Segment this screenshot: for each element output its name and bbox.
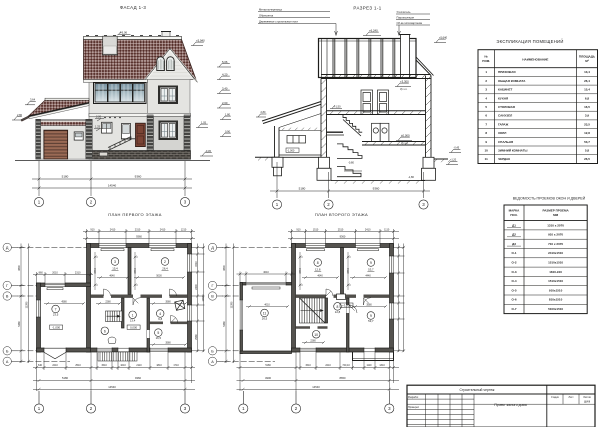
svg-text:О-3: О-3 xyxy=(511,270,516,274)
svg-text:15,4: 15,4 xyxy=(584,88,590,92)
svg-text:КАБИНЕТ: КАБИНЕТ xyxy=(498,88,512,92)
svg-text:Проект жилого дома: Проект жилого дома xyxy=(494,403,526,407)
svg-text:640: 640 xyxy=(38,364,43,367)
svg-text:8: 8 xyxy=(317,261,319,265)
svg-text:0,90: 0,90 xyxy=(225,129,231,133)
svg-text:910х1510: 910х1510 xyxy=(549,288,563,292)
svg-text:Д2: Д2 xyxy=(512,233,516,237)
svg-text:В: В xyxy=(211,295,214,299)
svg-text:ПЛОЩАДЬ: ПЛОЩАДЬ xyxy=(579,55,596,59)
svg-text:А: А xyxy=(211,360,214,364)
svg-text:9360: 9360 xyxy=(135,376,141,380)
svg-text:16,5: 16,5 xyxy=(584,105,590,109)
svg-text:Листов: Листов xyxy=(583,397,591,399)
svg-text:6: 6 xyxy=(104,329,106,333)
svg-text:1110: 1110 xyxy=(384,228,390,231)
svg-text:3800: 3800 xyxy=(223,265,226,271)
svg-text:8650: 8650 xyxy=(340,376,346,380)
svg-text:-1,20: -1,20 xyxy=(451,159,457,162)
svg-text:А: А xyxy=(6,360,9,364)
svg-text:О-7: О-7 xyxy=(511,307,516,311)
svg-text:3740: 3740 xyxy=(94,268,97,274)
svg-text:1510: 1510 xyxy=(313,228,319,231)
svg-text:ШИФ: ШИФ xyxy=(584,400,590,404)
svg-text:+6,06: +6,06 xyxy=(120,31,128,35)
svg-text:26,5: 26,5 xyxy=(262,317,268,321)
svg-text:Деревянные стропильные ноги: Деревянные стропильные ноги xyxy=(259,20,298,24)
svg-text:53,7: 53,7 xyxy=(584,140,590,144)
svg-text:5480: 5480 xyxy=(18,321,21,327)
svg-text:3800: 3800 xyxy=(18,265,21,271)
svg-text:8: 8 xyxy=(337,305,339,309)
svg-text:2400: 2400 xyxy=(195,284,198,290)
svg-text:Проверил: Проверил xyxy=(408,406,420,409)
svg-text:3740: 3740 xyxy=(299,268,302,274)
svg-text:ПОЗ.: ПОЗ. xyxy=(510,213,517,217)
svg-text:5,06: 5,06 xyxy=(222,60,228,64)
svg-text:14540: 14540 xyxy=(108,385,116,389)
svg-text:В: В xyxy=(6,295,9,299)
svg-text:РАЗРЕЗ 1-1: РАЗРЕЗ 1-1 xyxy=(353,6,381,11)
svg-text:7: 7 xyxy=(55,308,57,312)
svg-text:1810-910: 1810-910 xyxy=(549,270,562,274)
svg-text:2110: 2110 xyxy=(136,364,142,367)
svg-text:4440: 4440 xyxy=(365,275,371,278)
svg-text:910: 910 xyxy=(296,228,301,231)
svg-text:10: 10 xyxy=(314,333,318,337)
svg-text:3,40: 3,40 xyxy=(222,86,228,90)
svg-text:5180: 5180 xyxy=(299,187,306,191)
svg-text:О-4: О-4 xyxy=(511,279,516,283)
svg-text:-0,45: -0,45 xyxy=(205,149,211,153)
svg-text:НАИМЕНОВАНИЕ: НАИМЕНОВАНИЕ xyxy=(522,58,548,62)
svg-text:1: 1 xyxy=(132,313,134,317)
svg-text:910 х 2070: 910 х 2070 xyxy=(548,233,563,237)
svg-text:2510: 2510 xyxy=(338,228,344,231)
svg-text:910: 910 xyxy=(90,228,95,231)
svg-text:26,4: 26,4 xyxy=(584,79,590,83)
svg-text:Ур.ч.п.: Ур.ч.п. xyxy=(401,142,409,145)
svg-text:ПРИХОЖАЯ: ПРИХОЖАЯ xyxy=(498,70,516,74)
svg-text:2280: 2280 xyxy=(105,301,111,304)
svg-text:4010: 4010 xyxy=(264,304,270,307)
svg-text:2310: 2310 xyxy=(75,271,81,274)
svg-text:13,4: 13,4 xyxy=(130,318,136,322)
svg-text:0,000: 0,000 xyxy=(130,326,137,330)
svg-text:ХОЛЛ: ХОЛЛ xyxy=(498,131,506,135)
svg-text:11: 11 xyxy=(485,157,489,161)
svg-text:5,8: 5,8 xyxy=(585,149,590,153)
svg-text:1010: 1010 xyxy=(120,364,126,367)
svg-text:23,5: 23,5 xyxy=(584,122,590,126)
svg-text:740,10: 740,10 xyxy=(342,364,350,367)
svg-text:Ур.ч.п.: Ур.ч.п. xyxy=(400,88,408,91)
svg-text:Д: Д xyxy=(6,246,9,250)
svg-text:1710: 1710 xyxy=(173,364,179,367)
svg-text:2410: 2410 xyxy=(110,228,116,231)
svg-text:5100х1510: 5100х1510 xyxy=(548,307,563,311)
svg-text:Д3: Д3 xyxy=(512,242,516,246)
svg-text:ПЛАН ПЕРВОГО ЭТАЖА: ПЛАН ПЕРВОГО ЭТАЖА xyxy=(108,212,162,217)
svg-text:2,80: 2,80 xyxy=(17,113,23,117)
svg-text:26,4: 26,4 xyxy=(162,267,168,271)
svg-text:12,8: 12,8 xyxy=(335,310,341,314)
svg-text:810х1510: 810х1510 xyxy=(549,298,563,302)
svg-text:3580: 3580 xyxy=(165,342,171,345)
svg-text:-1,000: -1,000 xyxy=(52,326,60,330)
svg-text:15,4: 15,4 xyxy=(112,267,118,271)
svg-text:4010: 4010 xyxy=(263,271,269,274)
svg-text:3,64: 3,64 xyxy=(30,98,36,102)
svg-text:9360: 9360 xyxy=(340,234,346,238)
svg-text:-0,80: -0,80 xyxy=(348,161,354,165)
svg-text:6,8: 6,8 xyxy=(158,317,162,321)
svg-text:16,5: 16,5 xyxy=(156,336,162,340)
svg-text:РАЗМЕР ПРОЕМА: РАЗМЕР ПРОЕМА xyxy=(542,209,569,213)
svg-text:53,7: 53,7 xyxy=(368,268,374,272)
svg-text:ОБЩАЯ КОМНАТА: ОБЩАЯ КОМНАТА xyxy=(498,79,526,83)
svg-text:-0,45: -0,45 xyxy=(454,147,460,150)
svg-text:4640: 4640 xyxy=(109,275,115,278)
svg-text:1310: 1310 xyxy=(379,364,385,367)
svg-text:3740: 3740 xyxy=(347,268,350,274)
svg-text:2.20: 2.20 xyxy=(96,115,102,119)
svg-text:СПАЛЬНЯ: СПАЛЬНЯ xyxy=(498,140,513,144)
svg-text:3: 3 xyxy=(114,260,116,264)
svg-text:11390: 11390 xyxy=(26,301,29,308)
svg-text:-1,80: -1,80 xyxy=(408,175,414,179)
svg-text:9: 9 xyxy=(370,261,372,265)
svg-text:2980: 2980 xyxy=(195,334,198,340)
svg-text:3580: 3580 xyxy=(366,304,372,307)
svg-text:Утеплитель: Утеплитель xyxy=(397,10,412,14)
svg-text:ПЛАН ВТОРОГО ЭТАЖА: ПЛАН ВТОРОГО ЭТАЖА xyxy=(315,212,368,217)
svg-text:+3,300: +3,300 xyxy=(342,304,351,308)
svg-text:+3,300: +3,300 xyxy=(400,79,409,83)
svg-text:2280: 2280 xyxy=(310,340,316,343)
svg-text:Г: Г xyxy=(211,284,213,288)
svg-text:МАРКА: МАРКА xyxy=(509,209,520,213)
svg-text:ВЕДОМОСТЬ ПРОЕМОВ ОКОН И ДВЕРЕ: ВЕДОМОСТЬ ПРОЕМОВ ОКОН И ДВЕРЕЙ xyxy=(513,197,586,201)
svg-text:2310: 2310 xyxy=(135,228,141,231)
svg-text:9360: 9360 xyxy=(135,175,142,179)
svg-text:12,8: 12,8 xyxy=(315,268,321,272)
svg-text:Разработ.: Разработ. xyxy=(408,396,419,399)
svg-text:2410х1510: 2410х1510 xyxy=(548,251,563,255)
svg-text:4580: 4580 xyxy=(61,301,67,304)
svg-text:53,7: 53,7 xyxy=(368,319,374,323)
svg-text:9360: 9360 xyxy=(136,234,142,238)
svg-text:Строительный чертеж: Строительный чертеж xyxy=(460,388,496,392)
svg-text:ФАСАД 1-3: ФАСАД 1-3 xyxy=(120,5,147,10)
svg-text:11390: 11390 xyxy=(231,301,234,308)
svg-text:2,60: 2,60 xyxy=(222,101,228,105)
svg-text:2010: 2010 xyxy=(52,271,58,274)
svg-text:ММ: ММ xyxy=(553,213,558,217)
svg-text:ЭКСПЛИКАЦИЯ ПОМЕЩЕНИЙ: ЭКСПЛИКАЦИЯ ПОМЕЩЕНИЙ xyxy=(496,39,563,44)
svg-text:5180: 5180 xyxy=(62,376,68,380)
svg-text:ЗИМНИЙ КОМНАТЫ: ЗИМНИЙ КОМНАТЫ xyxy=(498,149,528,153)
svg-text:9: 9 xyxy=(370,314,372,318)
svg-text:4900: 4900 xyxy=(265,376,271,380)
svg-text:М²: М² xyxy=(585,59,589,63)
svg-text:КУХНЯ: КУХНЯ xyxy=(498,96,508,100)
svg-text:5180: 5180 xyxy=(265,364,271,367)
svg-text:26,5: 26,5 xyxy=(584,157,590,161)
svg-text:2: 2 xyxy=(164,260,166,264)
svg-text:2410: 2410 xyxy=(160,228,166,231)
svg-text:10: 10 xyxy=(485,149,489,153)
svg-text:2410: 2410 xyxy=(365,228,371,231)
svg-text:+5,640: +5,640 xyxy=(439,35,448,39)
svg-text:11: 11 xyxy=(263,312,267,316)
svg-text:5480: 5480 xyxy=(223,321,226,327)
svg-text:3,9: 3,9 xyxy=(585,114,590,118)
svg-text:860: 860 xyxy=(39,271,44,274)
svg-text:14540: 14540 xyxy=(312,385,320,389)
svg-text:14540: 14540 xyxy=(108,184,117,188)
svg-text:23,5: 23,5 xyxy=(53,313,59,317)
svg-text:Обрешетка: Обрешетка xyxy=(259,14,274,18)
svg-text:О-2: О-2 xyxy=(511,261,516,265)
svg-text:О-5: О-5 xyxy=(511,288,516,292)
svg-text:12,8: 12,8 xyxy=(584,131,590,135)
svg-text:ПОМ.: ПОМ. xyxy=(482,59,490,63)
svg-text:О-1: О-1 xyxy=(511,251,516,255)
svg-text:1510: 1510 xyxy=(101,364,107,367)
svg-text:+5,940: +5,940 xyxy=(196,38,205,42)
svg-text:9360: 9360 xyxy=(373,187,380,191)
svg-text:2210: 2210 xyxy=(52,364,58,367)
svg-text:Пароизоляция: Пароизоляция xyxy=(397,16,415,20)
svg-text:Д1: Д1 xyxy=(512,223,516,227)
svg-text:10680: 10680 xyxy=(202,294,205,302)
svg-text:6,8: 6,8 xyxy=(585,96,590,100)
svg-text:ЧЕРДАК: ЧЕРДАК xyxy=(498,157,510,161)
svg-text:1,80: 1,80 xyxy=(225,112,231,116)
svg-text:Стадия: Стадия xyxy=(551,397,560,399)
svg-text:13,4: 13,4 xyxy=(584,70,590,74)
svg-text:±0,000: ±0,000 xyxy=(401,133,410,137)
svg-text:5180: 5180 xyxy=(62,175,69,179)
svg-text:1110: 1110 xyxy=(367,364,373,367)
svg-text:Г: Г xyxy=(6,284,8,288)
svg-text:4640: 4640 xyxy=(317,275,323,278)
svg-text:-1,000: -1,000 xyxy=(287,149,295,153)
svg-text:1510х1510: 1510х1510 xyxy=(548,261,563,265)
svg-text:САНУЗЕЛ: САНУЗЕЛ xyxy=(498,114,512,118)
svg-text:4,20: 4,20 xyxy=(222,72,228,76)
svg-text:+1,50: +1,50 xyxy=(334,105,341,109)
svg-text:ГАРАЖ: ГАРАЖ xyxy=(498,122,509,126)
svg-text:Д: Д xyxy=(211,246,214,250)
svg-text:1310 х 2070: 1310 х 2070 xyxy=(547,223,564,227)
svg-text:2510: 2510 xyxy=(75,364,81,367)
svg-text:5: 5 xyxy=(157,331,159,335)
svg-text:1510: 1510 xyxy=(195,261,198,267)
svg-text:1,05: 1,05 xyxy=(201,120,207,124)
svg-text:1.25: 1.25 xyxy=(95,125,101,129)
svg-text:СТОЛОВАЯ: СТОЛОВАЯ xyxy=(498,105,515,109)
svg-text:1510: 1510 xyxy=(305,364,311,367)
svg-text:4: 4 xyxy=(159,312,161,316)
svg-text:1810: 1810 xyxy=(156,364,162,367)
svg-text:О-6: О-6 xyxy=(511,298,516,302)
svg-text:710 х 2070: 710 х 2070 xyxy=(548,242,563,246)
svg-text:+6,240: +6,240 xyxy=(369,28,378,32)
svg-text:Об-ка гипсокартоном: Об-ка гипсокартоном xyxy=(397,21,423,25)
svg-text:1210: 1210 xyxy=(181,228,187,231)
svg-text:Металлочерепица: Металлочерепица xyxy=(259,8,282,12)
svg-text:3740: 3740 xyxy=(134,268,137,274)
svg-text:2210: 2210 xyxy=(325,364,331,367)
svg-text:5030: 5030 xyxy=(156,275,162,278)
svg-text:1510х1510: 1510х1510 xyxy=(548,279,563,283)
svg-text:2,80: 2,80 xyxy=(261,111,266,114)
svg-text:3580: 3580 xyxy=(165,301,171,304)
